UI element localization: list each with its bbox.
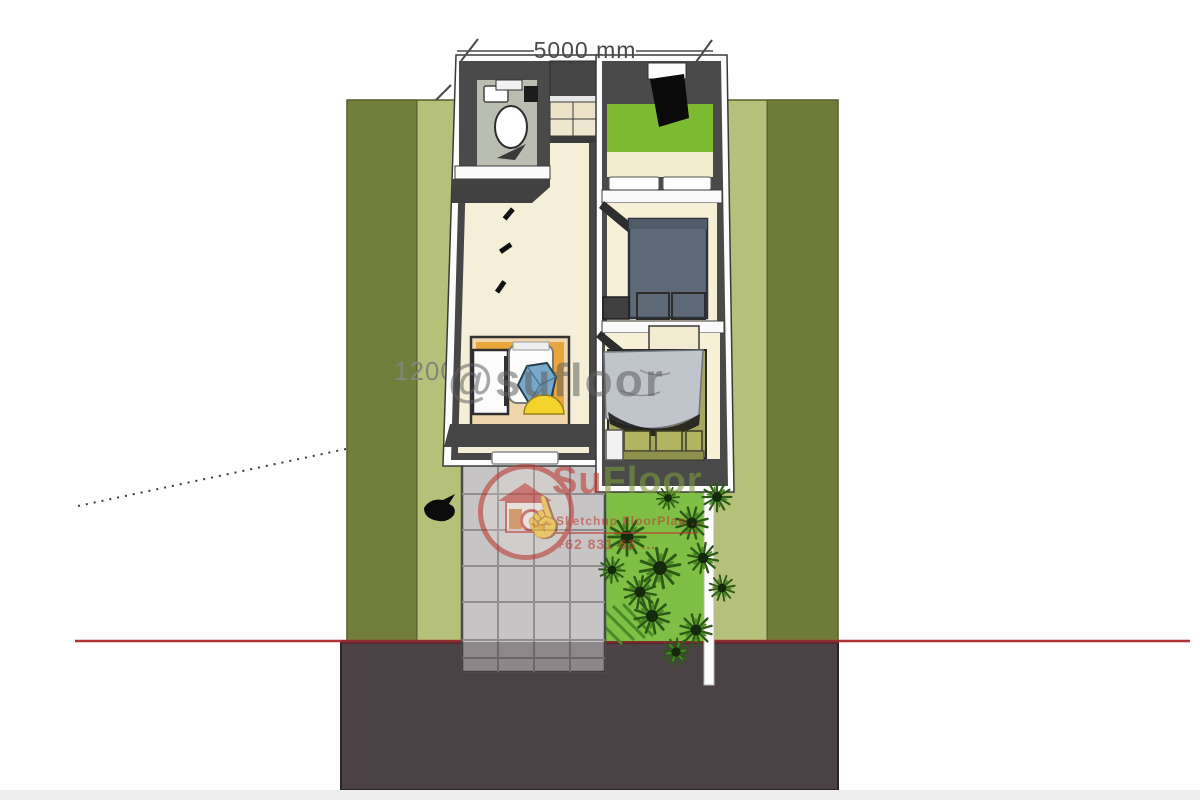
- watermark-logo: ☝ SuFloor Sketchup FloorPlan ... +62 831…: [478, 462, 738, 558]
- logo-rule: [555, 532, 697, 534]
- logo-brand-text: SuFloor: [552, 460, 703, 503]
- dotted-guide-line: [78, 449, 346, 506]
- bottom-edge-strip: [0, 790, 1200, 800]
- house-floor-plan: [443, 55, 734, 492]
- bedroom-middle: [599, 201, 717, 321]
- floorplan-render: 1200: [0, 0, 1200, 800]
- nightstand-icon: [603, 297, 629, 319]
- width-dimension-label: 5000 mm: [534, 37, 637, 63]
- wardrobe-icon: [550, 61, 596, 143]
- logo-tagline: Sketchup FloorPlan ...: [556, 514, 704, 528]
- right-wing: [596, 55, 734, 492]
- logo-brand-red: Su: [552, 460, 603, 502]
- nightstand-icon: [606, 430, 623, 460]
- property-line-red: [75, 641, 1190, 642]
- logo-phone: +62 831 63 ...: [556, 536, 656, 552]
- bathroom: [452, 61, 550, 203]
- site-plan-graphics: 1200: [0, 0, 1200, 800]
- toilet-icon: [495, 106, 527, 148]
- logo-brand-green: Floor: [603, 460, 703, 502]
- desk-icon: [649, 326, 699, 350]
- watermark-handle: @sufloor: [448, 354, 665, 406]
